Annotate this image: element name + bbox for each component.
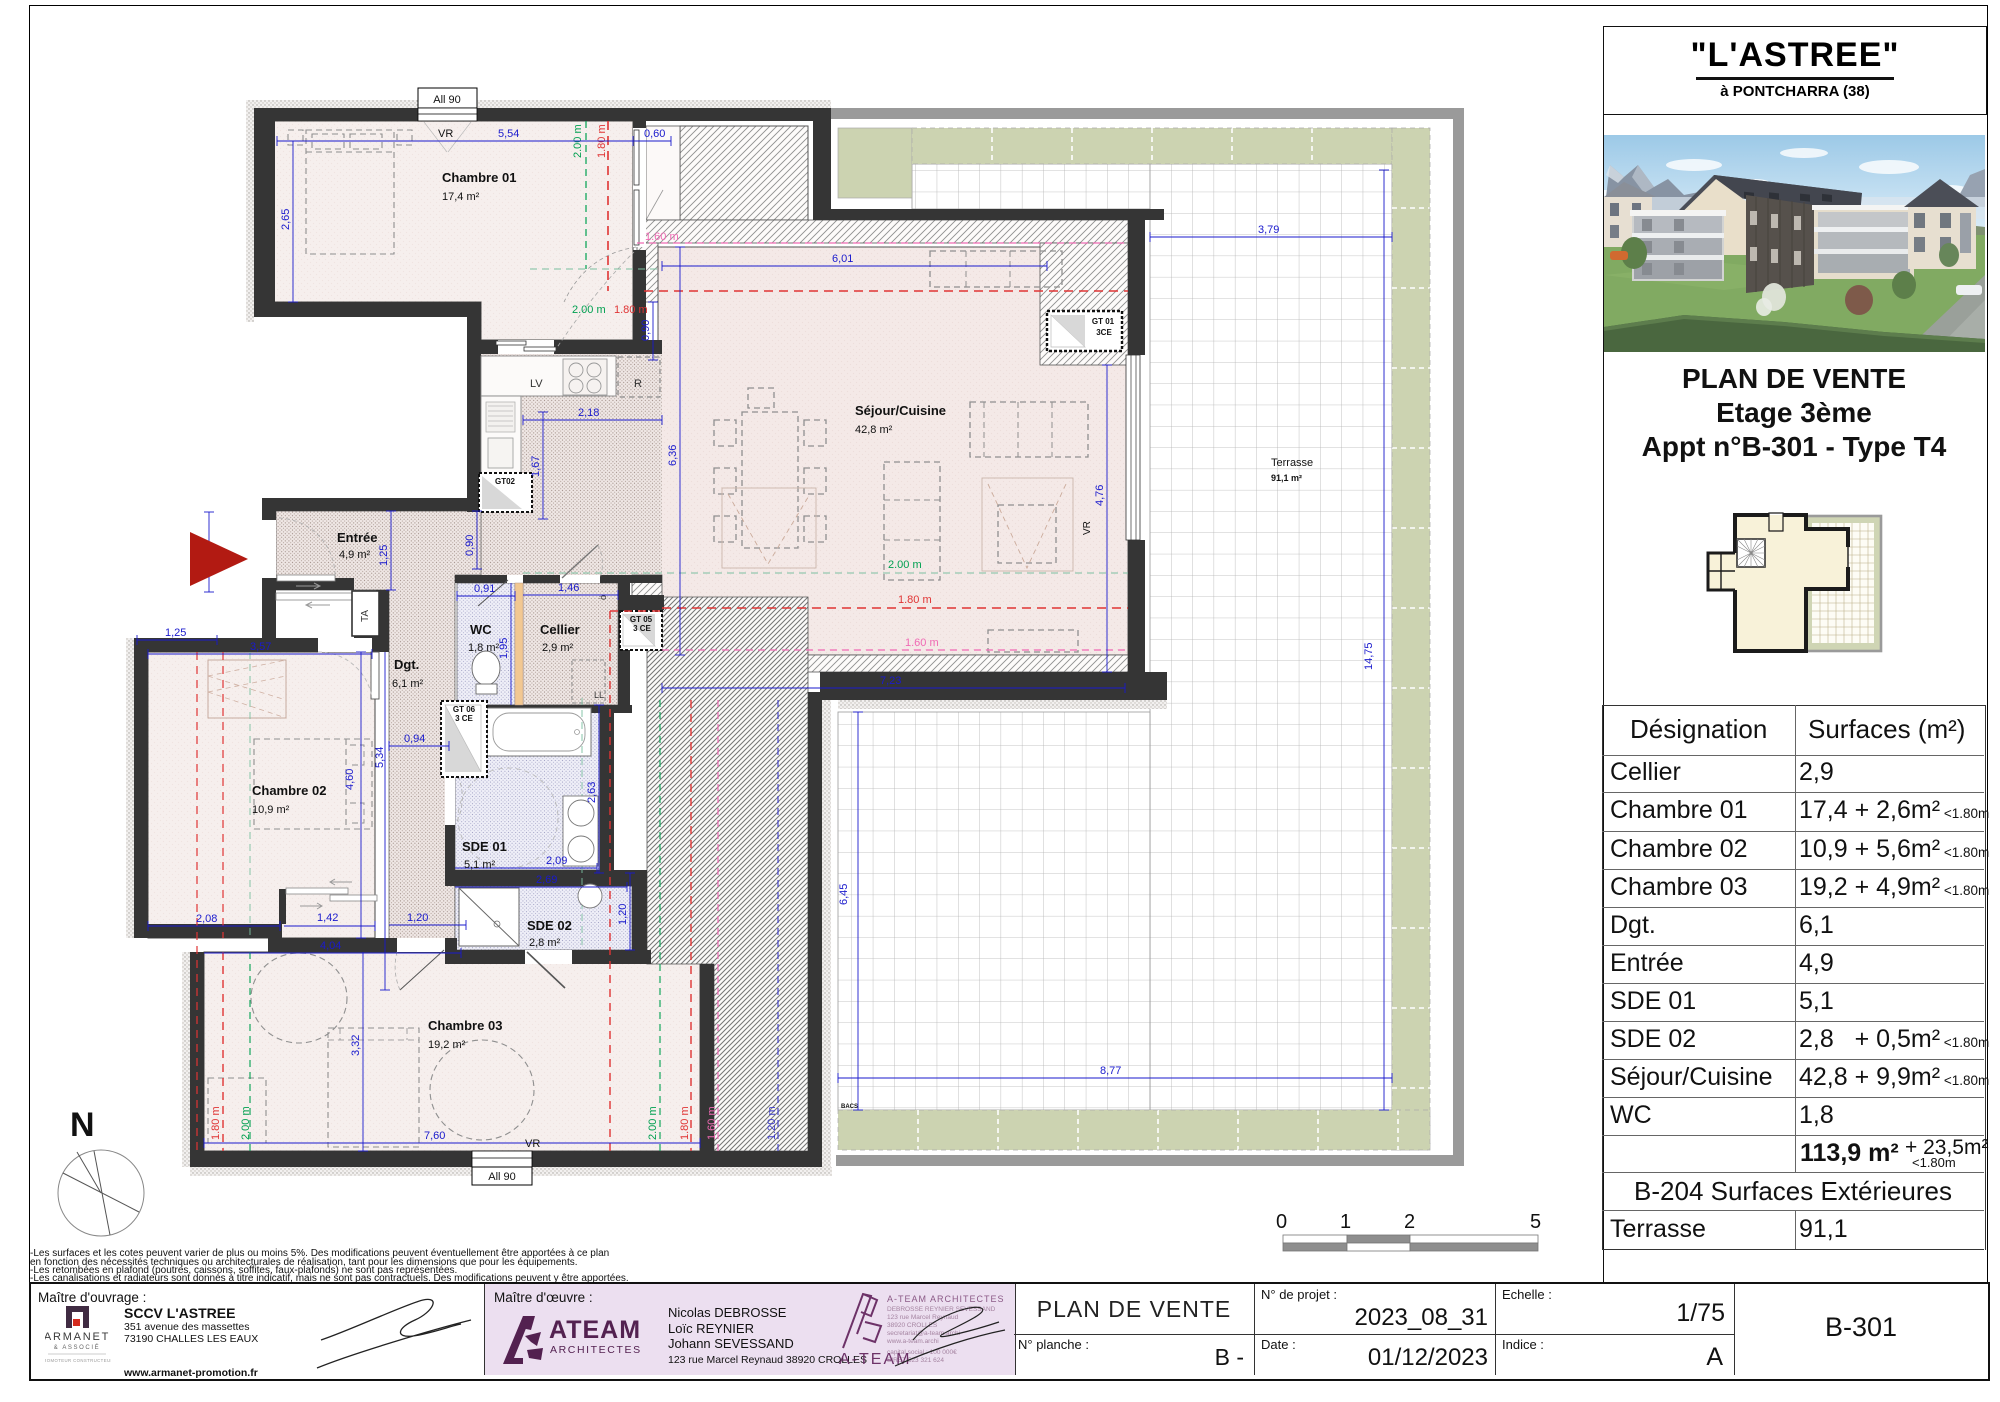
svg-text:GT 05: GT 05	[630, 615, 653, 624]
svg-text:Terrasse: Terrasse	[1271, 457, 1313, 469]
svg-text:1,8 m²: 1,8 m²	[468, 642, 500, 654]
svg-text:2.00 m: 2.00 m	[572, 304, 606, 316]
svg-text:0,90: 0,90	[464, 535, 476, 556]
svg-text:Séjour/Cuisine: Séjour/Cuisine	[855, 403, 946, 418]
svg-text:1.20 m: 1.20 m	[766, 1106, 778, 1140]
svg-text:VR: VR	[525, 1138, 540, 1150]
svg-text:All 90: All 90	[488, 1171, 516, 1183]
svg-text:2: 2	[1404, 1211, 1415, 1233]
svg-text:4,60: 4,60	[344, 769, 356, 790]
svg-text:1.60 m: 1.60 m	[706, 1106, 718, 1140]
svg-text:ARMANET: ARMANET	[45, 1331, 110, 1343]
svg-text:SDE 02: SDE 02	[527, 918, 572, 933]
svg-text:A-TEAM: A-TEAM	[839, 1351, 911, 1368]
svg-text:6,36: 6,36	[667, 445, 679, 466]
svg-text:7,60: 7,60	[424, 1130, 445, 1142]
svg-text:0,90: 0,90	[640, 320, 652, 341]
svg-text:8,77: 8,77	[1100, 1065, 1121, 1077]
svg-text:17,4 m²: 17,4 m²	[442, 191, 480, 203]
svg-text:2,65: 2,65	[280, 209, 292, 230]
svg-text:GT 06: GT 06	[453, 705, 476, 714]
svg-text:10,9 m²: 10,9 m²	[252, 804, 290, 816]
svg-text:1,42: 1,42	[317, 912, 338, 924]
svg-text:5,1 m²: 5,1 m²	[464, 859, 496, 871]
svg-text:2,8 m²: 2,8 m²	[529, 937, 561, 949]
svg-text:1,67: 1,67	[530, 456, 542, 477]
svg-text:& ASSOCIÉ: & ASSOCIÉ	[54, 1344, 100, 1351]
svg-text:2.00 m: 2.00 m	[240, 1106, 252, 1140]
svg-text:2,08: 2,08	[196, 913, 217, 925]
svg-text:1.60 m: 1.60 m	[645, 231, 679, 243]
svg-text:5,34: 5,34	[374, 747, 386, 768]
svg-text:1,25: 1,25	[378, 545, 390, 566]
svg-text:2,63: 2,63	[586, 782, 598, 803]
svg-text:LL: LL	[594, 690, 604, 700]
svg-text:3,32: 3,32	[350, 1035, 362, 1056]
svg-text:6,1 m²: 6,1 m²	[392, 678, 424, 690]
svg-text:1,20: 1,20	[617, 904, 629, 925]
svg-text:GT02: GT02	[495, 477, 516, 486]
svg-text:Chambre 02: Chambre 02	[252, 783, 326, 798]
svg-text:PROMOTEUR CONSTRUCTEUR: PROMOTEUR CONSTRUCTEUR	[45, 1358, 111, 1363]
svg-text:3 CE: 3 CE	[633, 624, 651, 633]
svg-text:2,18: 2,18	[578, 407, 599, 419]
svg-text:4,76: 4,76	[1094, 485, 1106, 506]
svg-text:Cellier: Cellier	[540, 622, 580, 637]
svg-text:0,60: 0,60	[644, 128, 665, 140]
svg-text:N: N	[70, 1106, 95, 1144]
svg-text:42,8 m²: 42,8 m²	[855, 424, 893, 436]
svg-text:2.00 m: 2.00 m	[888, 559, 922, 571]
svg-text:All 90: All 90	[433, 94, 461, 106]
svg-text:19,2 m²: 19,2 m²	[428, 1039, 466, 1051]
svg-text:0,91: 0,91	[474, 583, 495, 595]
svg-text:5,54: 5,54	[498, 128, 519, 140]
svg-text:VR: VR	[1082, 521, 1093, 535]
svg-text:ATEAM: ATEAM	[549, 1316, 641, 1344]
svg-text:2,69: 2,69	[536, 874, 557, 886]
svg-text:0,94: 0,94	[404, 733, 425, 745]
svg-text:1: 1	[1340, 1211, 1351, 1233]
svg-text:7,23: 7,23	[880, 675, 901, 687]
svg-text:Dgt.: Dgt.	[394, 657, 419, 672]
svg-text:BACS: BACS	[841, 1104, 858, 1110]
svg-text:LV: LV	[530, 378, 543, 390]
svg-text:1,95: 1,95	[498, 638, 510, 659]
svg-text:Chambre 01: Chambre 01	[442, 170, 516, 185]
svg-text:2,09: 2,09	[546, 855, 567, 867]
svg-text:GT 01: GT 01	[1092, 317, 1115, 326]
svg-text:3CE: 3CE	[1096, 328, 1112, 337]
svg-text:3,79: 3,79	[1258, 224, 1279, 236]
svg-text:TA: TA	[360, 610, 371, 622]
svg-text:1.80 m: 1.80 m	[210, 1106, 222, 1140]
svg-text:0: 0	[1276, 1211, 1287, 1233]
svg-text:3 CE: 3 CE	[455, 714, 473, 723]
svg-text:3,57: 3,57	[250, 641, 271, 653]
svg-text:4,9 m²: 4,9 m²	[339, 549, 371, 561]
svg-text:ö: ö	[598, 595, 608, 600]
svg-text:38920 CROLLES: 38920 CROLLES	[887, 1322, 938, 1329]
svg-text:www.a-team.archi: www.a-team.archi	[886, 1338, 939, 1345]
svg-text:14,75: 14,75	[1363, 642, 1375, 670]
svg-text:2,9 m²: 2,9 m²	[542, 642, 574, 654]
svg-text:1.80 m: 1.80 m	[679, 1106, 691, 1140]
svg-text:1,20: 1,20	[407, 912, 428, 924]
svg-text:VR: VR	[438, 128, 453, 140]
svg-text:ARCHITECTES: ARCHITECTES	[550, 1344, 642, 1356]
svg-text:91,1 m²: 91,1 m²	[1271, 473, 1302, 483]
svg-text:4,04: 4,04	[320, 940, 341, 952]
svg-text:WC: WC	[470, 622, 492, 637]
svg-text:A-TEAM ARCHITECTES: A-TEAM ARCHITECTES	[887, 1294, 1005, 1304]
svg-text:Chambre 03: Chambre 03	[428, 1018, 502, 1033]
svg-text:1,46: 1,46	[558, 582, 579, 594]
svg-text:1,25: 1,25	[165, 627, 186, 639]
svg-text:6,01: 6,01	[832, 253, 853, 265]
svg-text:1.60 m: 1.60 m	[905, 637, 939, 649]
svg-text:6,45: 6,45	[838, 884, 850, 905]
svg-text:5: 5	[1530, 1211, 1541, 1233]
svg-text:1.80 m: 1.80 m	[898, 594, 932, 606]
svg-text:2.00 m: 2.00 m	[647, 1106, 659, 1140]
svg-text:1.80 m: 1.80 m	[614, 304, 648, 316]
svg-text:R: R	[634, 378, 642, 390]
svg-text:Entrée: Entrée	[337, 530, 377, 545]
svg-text:SDE 01: SDE 01	[462, 839, 507, 854]
